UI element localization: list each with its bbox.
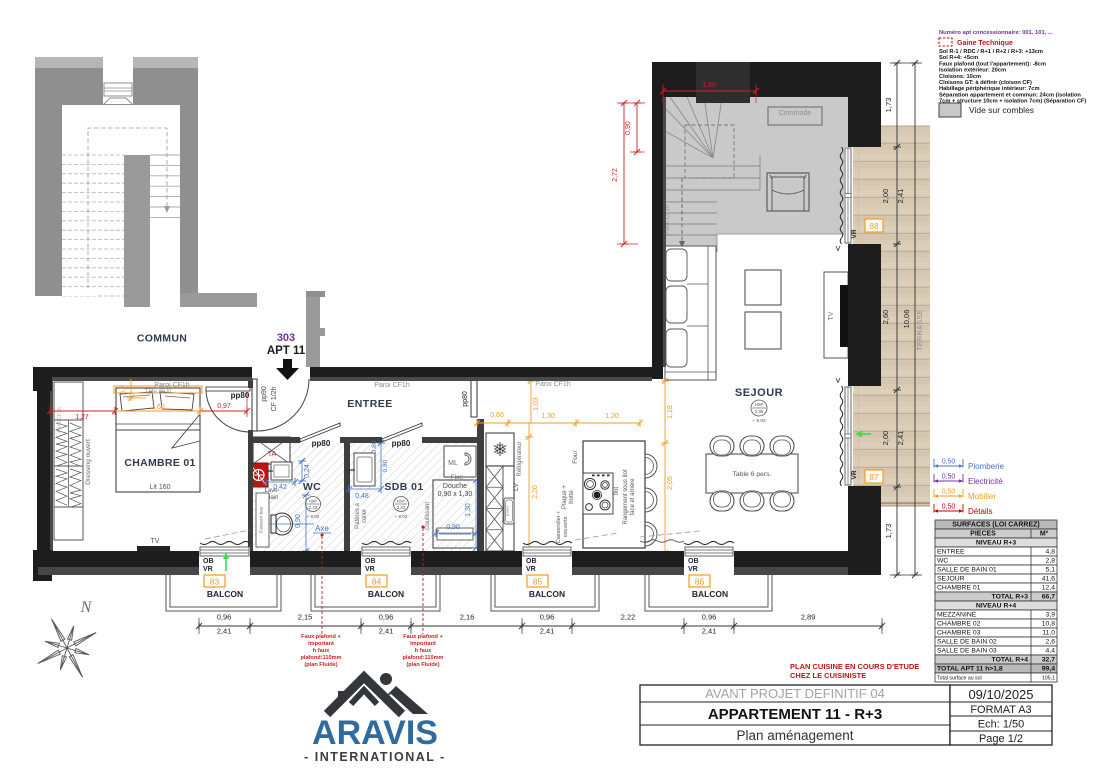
svg-text:0,42: 0,42 xyxy=(273,484,287,491)
svg-text:hotte: hotte xyxy=(569,490,575,504)
svg-text:10,8: 10,8 xyxy=(1042,621,1055,628)
svg-text:AVANT PROJET DEFINITIF 04: AVANT PROJET DEFINITIF 04 xyxy=(705,686,885,701)
svg-text:Important: Important xyxy=(308,641,334,647)
svg-text:Patères à: Patères à xyxy=(355,502,361,528)
svg-text:h faux: h faux xyxy=(415,648,432,654)
svg-text:Habillage périphérique intérie: Habillage périphérique intérieur: 7cm xyxy=(939,86,1040,92)
svg-text:NIVEAU R+4: NIVEAU R+4 xyxy=(976,603,1016,610)
svg-text:09/10/2025: 09/10/2025 xyxy=(968,687,1033,702)
svg-text:0,80: 0,80 xyxy=(371,440,378,453)
svg-text:- INTERNATIONAL -: - INTERNATIONAL - xyxy=(304,750,446,764)
svg-text:0,90: 0,90 xyxy=(625,121,632,135)
svg-text:Plan aménagement: Plan aménagement xyxy=(736,728,853,743)
svg-text:2,41: 2,41 xyxy=(702,627,717,636)
svg-text:0,96: 0,96 xyxy=(702,613,717,622)
svg-text:2,20: 2,20 xyxy=(532,485,539,499)
svg-text:SALLE DE BAIN 03: SALLE DE BAIN 03 xyxy=(937,648,997,655)
svg-text:Electricité: Electricité xyxy=(968,477,1003,486)
svg-text:86: 86 xyxy=(695,577,705,587)
svg-text:TOTAL R+4: TOTAL R+4 xyxy=(992,657,1029,664)
svg-text:Cloisons: 10cm: Cloisons: 10cm xyxy=(939,74,981,80)
svg-text:CHEZ LE CUISINISTE: CHEZ LE CUISINISTE xyxy=(790,671,866,680)
svg-text:ML: ML xyxy=(448,460,458,467)
svg-text:2,8: 2,8 xyxy=(1046,558,1056,565)
svg-text:VR: VR xyxy=(688,566,698,573)
svg-text:Ech: 1/50: Ech: 1/50 xyxy=(978,719,1024,731)
svg-text:Sol R+4: +5cm: Sol R+4: +5cm xyxy=(939,55,978,61)
svg-text:OB: OB xyxy=(365,558,376,565)
svg-text:Plaque +: Plaque + xyxy=(562,485,568,509)
svg-text:Isolation extérieur: 20cm: Isolation extérieur: 20cm xyxy=(939,68,1006,74)
svg-text:Séparation appartement et comm: Séparation appartement et commun: 24cm (… xyxy=(939,92,1081,98)
svg-text:+ 9.02: + 9.02 xyxy=(307,514,320,519)
svg-text:WC: WC xyxy=(937,558,948,565)
svg-text:VR: VR xyxy=(365,566,375,573)
svg-text:2,89: 2,89 xyxy=(801,613,816,622)
svg-text:10,06: 10,06 xyxy=(902,310,911,329)
svg-text:VR: VR xyxy=(851,470,858,479)
svg-text:pp90: pp90 xyxy=(261,386,268,402)
svg-text:M²: M² xyxy=(1040,531,1049,538)
svg-text:0,96: 0,96 xyxy=(540,613,555,622)
svg-text:0,50: 0,50 xyxy=(942,504,956,511)
svg-text:PIECES: PIECES xyxy=(970,531,996,538)
svg-text:coller: coller xyxy=(362,509,368,523)
svg-text:APPARTEMENT 11 - R+3: APPARTEMENT 11 - R+3 xyxy=(708,706,882,723)
svg-text:Détails: Détails xyxy=(968,507,992,516)
svg-text:Page 1/2: Page 1/2 xyxy=(979,733,1023,745)
svg-text:h faux: h faux xyxy=(313,648,330,654)
svg-text:105,1: 105,1 xyxy=(1042,676,1055,682)
svg-text:1,73: 1,73 xyxy=(884,524,893,539)
svg-text:2,35: 2,35 xyxy=(755,409,764,414)
svg-text:TA: TA xyxy=(268,451,277,458)
svg-text:41,6: 41,6 xyxy=(1042,576,1055,583)
svg-text:4,4: 4,4 xyxy=(1046,648,1056,655)
svg-text:SALLE DE BAIN 01: SALLE DE BAIN 01 xyxy=(937,567,997,574)
svg-text:0,50: 0,50 xyxy=(942,459,956,466)
svg-text:85: 85 xyxy=(533,577,543,587)
svg-text:Important: Important xyxy=(410,641,436,647)
svg-text:pp80: pp80 xyxy=(392,439,411,448)
svg-text:face et arrière: face et arrière xyxy=(630,478,636,516)
svg-text:99,4: 99,4 xyxy=(1042,666,1055,673)
svg-text:HSP: HSP xyxy=(755,402,764,407)
svg-text:LV: LV xyxy=(513,483,520,491)
svg-text:Lit 160: Lit 160 xyxy=(149,484,170,491)
svg-text:Faux plafond +: Faux plafond + xyxy=(301,634,341,640)
svg-text:Douche: Douche xyxy=(443,483,467,490)
svg-text:COMMUN: COMMUN xyxy=(137,333,187,345)
svg-text:Faux plafond +: Faux plafond + xyxy=(403,634,443,640)
svg-text:TV: TV xyxy=(151,538,160,545)
svg-text:MEZZANINE: MEZZANINE xyxy=(937,612,977,619)
svg-text:0,90 x 1,30: 0,90 x 1,30 xyxy=(438,491,473,498)
svg-text:HSP: HSP xyxy=(397,499,406,504)
svg-text:4,8: 4,8 xyxy=(1046,549,1056,556)
svg-text:1,18: 1,18 xyxy=(667,405,674,419)
svg-text:Vide sur combles: Vide sur combles xyxy=(969,105,1034,115)
svg-text:303: 303 xyxy=(277,332,295,344)
svg-text:ARAVIS: ARAVIS xyxy=(312,714,438,752)
svg-text:1,30: 1,30 xyxy=(541,413,555,420)
svg-text:CF 1/2h: CF 1/2h xyxy=(271,386,278,411)
svg-text:SALLE DE BAIN 02: SALLE DE BAIN 02 xyxy=(937,639,997,646)
svg-text:FORMAT A3: FORMAT A3 xyxy=(970,704,1031,716)
svg-text:BALCON: BALCON xyxy=(529,589,565,599)
svg-text:1,03: 1,03 xyxy=(533,397,540,411)
svg-text:Rangement sous îlot: Rangement sous îlot xyxy=(623,469,629,524)
svg-text:Commode: Commode xyxy=(779,110,811,117)
svg-text:TOTAL APT 11 h>1,8: TOTAL APT 11 h>1,8 xyxy=(937,666,1003,673)
svg-text:HSP: HSP xyxy=(309,499,318,504)
svg-text:1,60: 1,60 xyxy=(151,404,165,411)
svg-text:BALCON: BALCON xyxy=(207,589,243,599)
svg-text:CHAMBRE 03: CHAMBRE 03 xyxy=(937,630,981,637)
svg-text:(plan Fluide): (plan Fluide) xyxy=(304,662,337,668)
svg-text:BALCON: BALCON xyxy=(368,589,404,599)
svg-text:0,48: 0,48 xyxy=(355,493,369,500)
svg-text:0,24: 0,24 xyxy=(304,464,311,478)
svg-text:OB: OB xyxy=(526,558,537,565)
svg-text:66,7: 66,7 xyxy=(1042,594,1055,601)
svg-text:Mobilier: Mobilier xyxy=(968,492,996,501)
svg-text:1,20: 1,20 xyxy=(605,413,619,420)
svg-text:plafond:110mm: plafond:110mm xyxy=(402,655,443,661)
svg-text:OB: OB xyxy=(203,558,214,565)
svg-text:2,72: 2,72 xyxy=(612,168,619,182)
svg-text:pp80: pp80 xyxy=(312,439,331,448)
svg-text:2,05: 2,05 xyxy=(667,476,674,490)
svg-text:5,1: 5,1 xyxy=(1046,567,1056,574)
svg-text:WC: WC xyxy=(303,481,321,493)
svg-text:Cloisons GT: à définir (cloiso: Cloisons GT: à définir (cloison CF) xyxy=(939,80,1032,86)
svg-text:1,27: 1,27 xyxy=(75,414,89,421)
svg-text:SURFACES (LOI CARREZ): SURFACES (LOI CARREZ) xyxy=(952,522,1040,529)
svg-text:0,80: 0,80 xyxy=(382,459,389,472)
svg-text:Casserolier +: Casserolier + xyxy=(556,511,562,544)
svg-text:NIVEAU R+3: NIVEAU R+3 xyxy=(976,540,1016,547)
svg-text:TV: TV xyxy=(828,311,835,320)
svg-text:Coulissant: Coulissant xyxy=(425,502,431,530)
svg-text:Total surface au sol: Total surface au sol xyxy=(937,676,982,682)
svg-text:BALCON: BALCON xyxy=(692,589,728,599)
svg-text:Dressing ouvert: Dressing ouvert xyxy=(85,439,92,485)
svg-text:2,41: 2,41 xyxy=(896,431,905,446)
svg-text:2,41: 2,41 xyxy=(540,627,555,636)
svg-text:CHAMBRE 02: CHAMBRE 02 xyxy=(937,621,981,628)
svg-text:12,4: 12,4 xyxy=(1042,585,1055,592)
svg-text:84: 84 xyxy=(372,577,382,587)
svg-text:11,0: 11,0 xyxy=(1042,630,1055,637)
svg-text:2,41: 2,41 xyxy=(379,627,394,636)
svg-text:0,96: 0,96 xyxy=(217,613,232,622)
svg-text:OB: OB xyxy=(688,558,699,565)
svg-text:Îlot: Îlot xyxy=(613,487,620,496)
svg-text:1,30: 1,30 xyxy=(465,503,472,517)
svg-text:ENTREE: ENTREE xyxy=(347,398,393,410)
svg-text:PLAN CUISINE EN COURS D'ETUDE: PLAN CUISINE EN COURS D'ETUDE xyxy=(790,662,919,671)
svg-text:2,22: 2,22 xyxy=(621,613,636,622)
svg-text:Evier: Evier xyxy=(505,505,510,516)
svg-text:Paroi CF1h: Paroi CF1h xyxy=(535,381,571,388)
svg-text:0,97: 0,97 xyxy=(217,403,231,410)
svg-text:1,73: 1,73 xyxy=(884,98,893,113)
svg-text:couverts: couverts xyxy=(563,516,569,537)
svg-text:SDB 01: SDB 01 xyxy=(384,481,423,493)
svg-text:0,50: 0,50 xyxy=(942,474,956,481)
svg-text:N: N xyxy=(80,599,93,616)
svg-text:87: 87 xyxy=(869,472,879,482)
svg-text:SEJOUR: SEJOUR xyxy=(735,387,783,399)
svg-text:Numéro apt concessionnaire: 00: Numéro apt concessionnaire: 001, 101, ..… xyxy=(939,30,1053,36)
svg-text:0,96: 0,96 xyxy=(379,613,394,622)
svg-text:2,00: 2,00 xyxy=(881,189,890,204)
svg-text:2,60: 2,60 xyxy=(881,310,890,325)
svg-text:2,33: 2,33 xyxy=(309,505,318,510)
svg-text:VR: VR xyxy=(526,566,536,573)
svg-text:2,6: 2,6 xyxy=(1046,639,1056,646)
svg-text:Paroi CF1h: Paroi CF1h xyxy=(374,382,410,389)
svg-text:88: 88 xyxy=(869,221,879,231)
svg-text:Sol R-1 / RDC / R+1 / R+2 / R+: Sol R-1 / RDC / R+1 / R+2 / R+3: +13cm xyxy=(939,49,1043,55)
svg-text:2,15: 2,15 xyxy=(298,613,313,622)
svg-text:VR: VR xyxy=(203,566,213,573)
svg-text:32,7: 32,7 xyxy=(1042,657,1055,664)
svg-text:TOTAL R+3: TOTAL R+3 xyxy=(992,594,1029,601)
svg-text:Gaine Technique: Gaine Technique xyxy=(957,40,1013,47)
svg-text:CHAMBRE 01: CHAMBRE 01 xyxy=(124,457,195,469)
svg-text:0,2: 0,2 xyxy=(121,385,127,394)
svg-text:83: 83 xyxy=(210,577,220,587)
svg-text:Caisson bas: Caisson bas xyxy=(259,506,265,533)
svg-text:VR: VR xyxy=(851,229,858,238)
svg-text:0,50: 0,50 xyxy=(942,489,956,496)
svg-text:Réfrigérateur: Réfrigérateur xyxy=(517,441,523,476)
svg-text:0,90: 0,90 xyxy=(295,514,302,528)
svg-text:2,33: 2,33 xyxy=(397,505,406,510)
svg-text:0,60: 0,60 xyxy=(490,412,504,419)
svg-text:2,00: 2,00 xyxy=(881,431,890,446)
svg-text:APT 11: APT 11 xyxy=(267,345,306,357)
svg-text:Tête de lit: Tête de lit xyxy=(145,389,172,395)
svg-text:Paroi CF1h: Paroi CF1h xyxy=(154,382,190,389)
svg-text:1,80: 1,80 xyxy=(702,82,716,89)
svg-text:2,41: 2,41 xyxy=(217,627,232,636)
svg-text:CHAMBRE 01: CHAMBRE 01 xyxy=(937,585,981,592)
svg-text:Axe: Axe xyxy=(315,524,329,533)
svg-text:SEJOUR: SEJOUR xyxy=(937,576,965,583)
svg-text:+ 9.02: + 9.02 xyxy=(752,418,766,424)
svg-text:ENTREE: ENTREE xyxy=(937,549,965,556)
svg-text:3,9: 3,9 xyxy=(1046,612,1056,619)
svg-text:Table 6 pers.: Table 6 pers. xyxy=(733,471,772,478)
svg-text:pp80: pp80 xyxy=(462,391,469,407)
svg-text:0,90: 0,90 xyxy=(446,524,460,531)
svg-text:Four: Four xyxy=(572,449,579,463)
svg-text:TERRASSE: TERRASSE xyxy=(917,309,924,351)
svg-text:Plomberie: Plomberie xyxy=(968,462,1005,471)
svg-text:Faux plafond (tout l'apparteme: Faux plafond (tout l'appartement): -8cm xyxy=(939,61,1046,67)
svg-text:plafond:110mm: plafond:110mm xyxy=(300,655,341,661)
svg-text:(plan Fluide): (plan Fluide) xyxy=(406,662,439,668)
svg-text:+ 9.02: + 9.02 xyxy=(395,514,408,519)
svg-text:2,16: 2,16 xyxy=(460,613,475,622)
svg-text:2,41: 2,41 xyxy=(896,189,905,204)
